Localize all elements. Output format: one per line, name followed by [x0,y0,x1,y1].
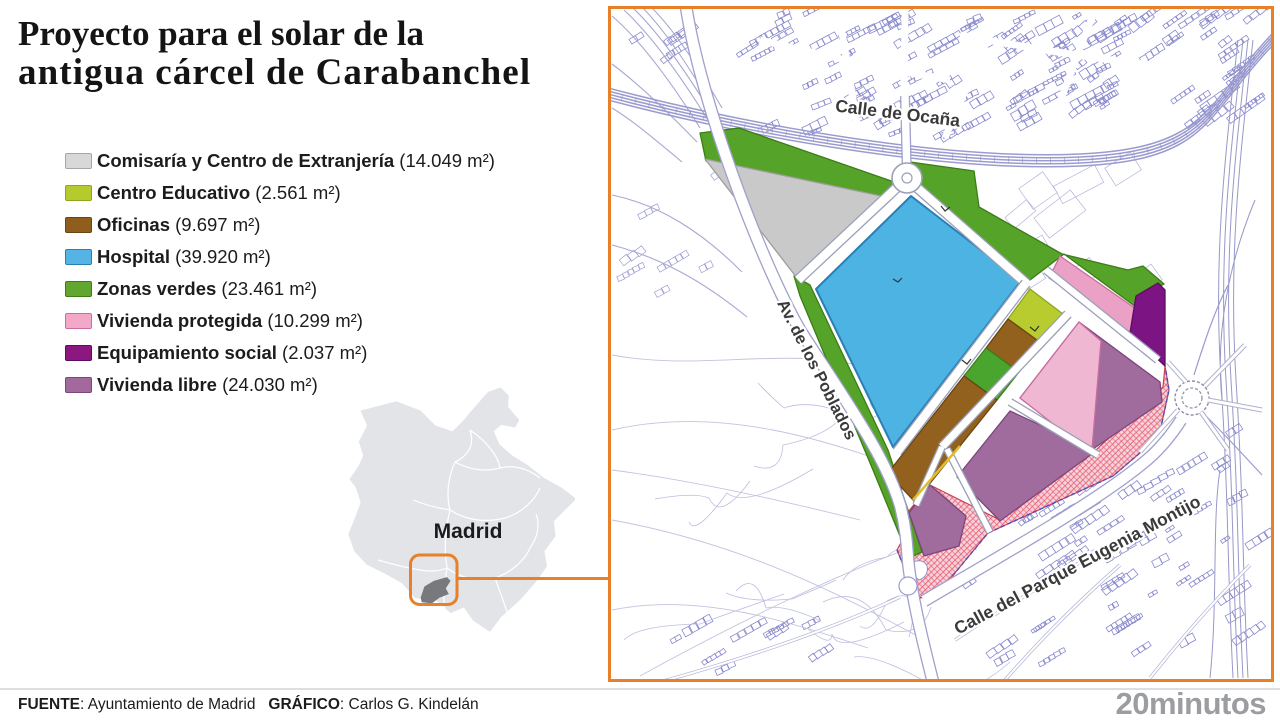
svg-text:Madrid: Madrid [434,520,503,543]
